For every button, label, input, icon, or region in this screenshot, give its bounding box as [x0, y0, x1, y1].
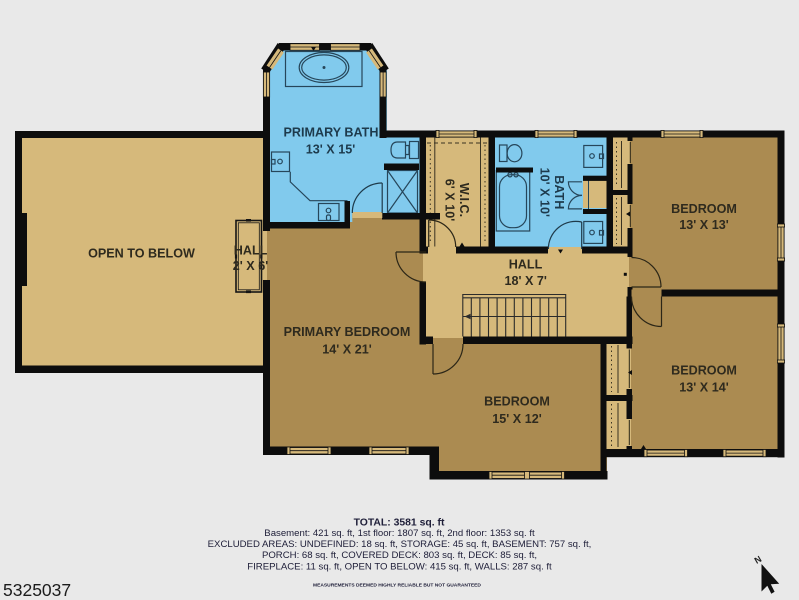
- svg-text:HALL: HALL: [509, 258, 543, 272]
- svg-text:MEASUREMENTS DEEMED HIGHLY REL: MEASUREMENTS DEEMED HIGHLY RELIABLE BUT …: [313, 582, 481, 588]
- svg-text:BATH: BATH: [552, 175, 566, 209]
- svg-text:18' X 7': 18' X 7': [504, 274, 546, 288]
- svg-text:PRIMARY BATH: PRIMARY BATH: [284, 126, 379, 140]
- svg-text:5325037: 5325037: [3, 580, 71, 600]
- svg-text:OPEN TO BELOW: OPEN TO BELOW: [88, 247, 195, 261]
- svg-text:BEDROOM: BEDROOM: [484, 395, 550, 409]
- svg-text:13' X 15': 13' X 15': [306, 143, 355, 157]
- svg-text:14' X 21': 14' X 21': [322, 343, 371, 357]
- svg-text:BEDROOM: BEDROOM: [671, 364, 737, 378]
- svg-text:Basement: 421 sq. ft, 1st floo: Basement: 421 sq. ft, 1st floor: 1807 sq…: [264, 528, 535, 539]
- svg-text:HALL: HALL: [234, 243, 268, 257]
- svg-text:13' X 13': 13' X 13': [679, 218, 728, 232]
- svg-text:6' X 10': 6' X 10': [443, 179, 457, 221]
- svg-text:15' X 12': 15' X 12': [492, 412, 541, 426]
- svg-text:10' X 10': 10' X 10': [538, 168, 552, 217]
- svg-text:FIREPLACE: 11 sq. ft, OPEN TO: FIREPLACE: 11 sq. ft, OPEN TO BELOW: 415…: [247, 561, 552, 572]
- svg-text:EXCLUDED AREAS: UNDEFINED: 18: EXCLUDED AREAS: UNDEFINED: 18 sq. ft, ST…: [208, 539, 592, 550]
- svg-text:TOTAL: 3581 sq. ft: TOTAL: 3581 sq. ft: [354, 517, 445, 528]
- svg-text:W.I.C.: W.I.C.: [457, 183, 471, 217]
- svg-text:BEDROOM: BEDROOM: [671, 202, 737, 216]
- svg-text:PRIMARY BEDROOM: PRIMARY BEDROOM: [284, 325, 411, 339]
- svg-text:13' X 14': 13' X 14': [679, 381, 728, 395]
- svg-text:PORCH: 68 sq. ft, COVERED DECK: PORCH: 68 sq. ft, COVERED DECK: 803 sq. …: [262, 550, 537, 561]
- svg-text:2' X 6': 2' X 6': [233, 259, 268, 273]
